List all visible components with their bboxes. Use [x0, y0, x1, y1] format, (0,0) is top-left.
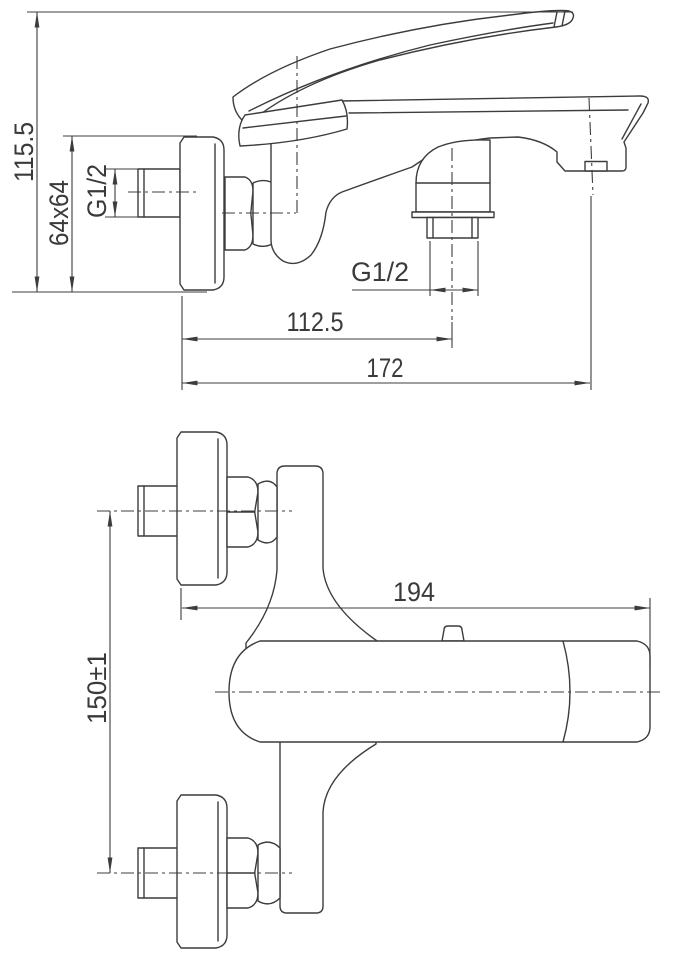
upper-body-connector [258, 481, 277, 543]
dimension-inlet-center-spacing: 150±1 [82, 511, 112, 873]
dim-label-escutcheon-size: 64x64 [44, 180, 74, 246]
dimension-wall-to-shower-outlet: 112.5 [182, 307, 452, 339]
dimension-escutcheon-size: 64x64 [44, 136, 74, 292]
dim-label-wall-inlet-thread: G1/2 [82, 164, 112, 218]
dimension-overall-height: 115.5 [9, 12, 39, 292]
aerator-insert [585, 162, 607, 172]
technical-drawing: 115.5 64x64 G1/2 G1/2 112.5 172 [0, 0, 676, 964]
dim-label-spout-reach: 194 [393, 577, 435, 607]
diverter-tab [442, 626, 464, 641]
wall-escutcheon [180, 137, 224, 290]
dim-label-inlet-center-spacing: 150±1 [82, 652, 112, 724]
dimension-wall-to-spout-tip: 172 [182, 353, 590, 383]
shower-outlet-lip [412, 212, 494, 218]
side-view: 115.5 64x64 G1/2 G1/2 112.5 172 [9, 11, 648, 391]
upper-wall-escutcheon [177, 432, 227, 585]
front-view: 194 150±1 [82, 432, 664, 948]
dim-label-wall-to-spout-tip: 172 [367, 353, 404, 383]
dimension-spout-reach: 194 [182, 577, 650, 608]
dim-label-shower-outlet-thread: G1/2 [351, 257, 409, 287]
dim-label-wall-to-shower-outlet: 112.5 [287, 307, 344, 337]
lower-wall-escutcheon [177, 795, 227, 948]
dimension-shower-outlet-thread: G1/2 [351, 257, 478, 290]
dimension-wall-inlet-thread: G1/2 [82, 164, 115, 218]
dim-label-overall-height: 115.5 [9, 122, 39, 182]
